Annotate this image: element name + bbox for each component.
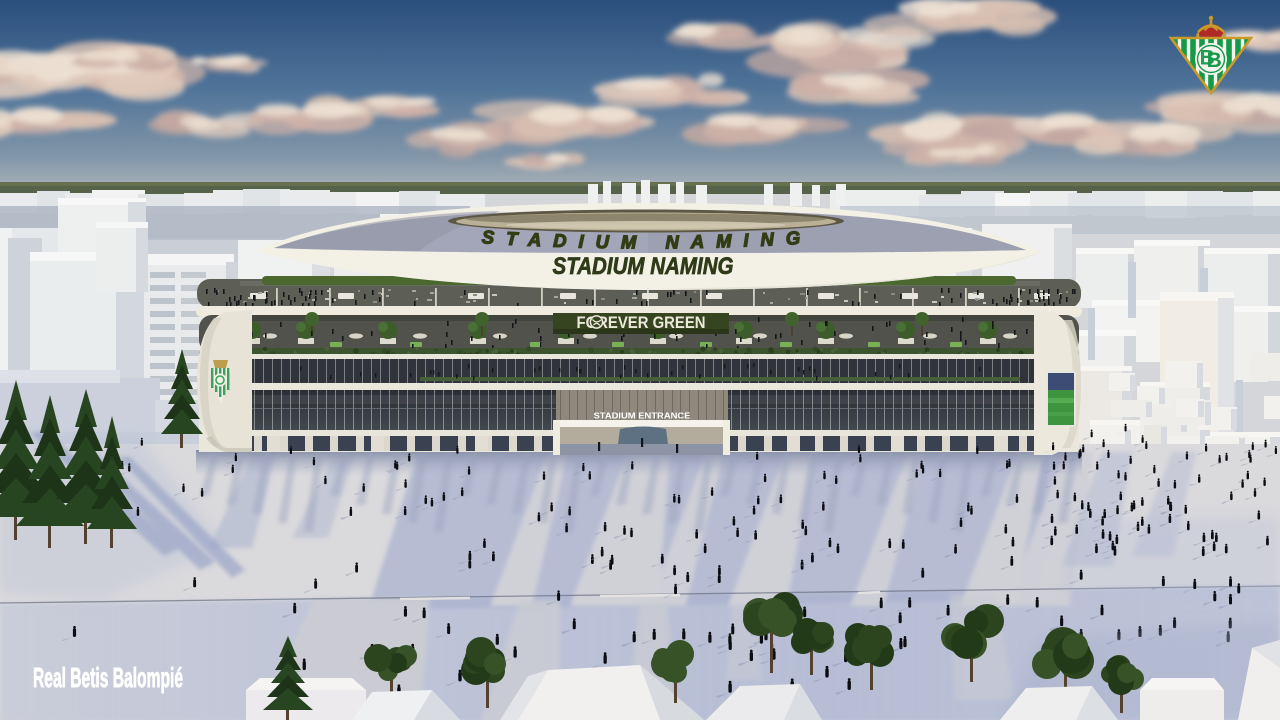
svg-text:STADIUM ENTRANCE: STADIUM ENTRANCE	[594, 412, 692, 421]
svg-text:Real Betis Balompié: Real Betis Balompié	[33, 662, 183, 693]
svg-text:B: B	[1200, 47, 1215, 70]
svg-text:STADIUM NAMING: STADIUM NAMING	[553, 253, 734, 280]
